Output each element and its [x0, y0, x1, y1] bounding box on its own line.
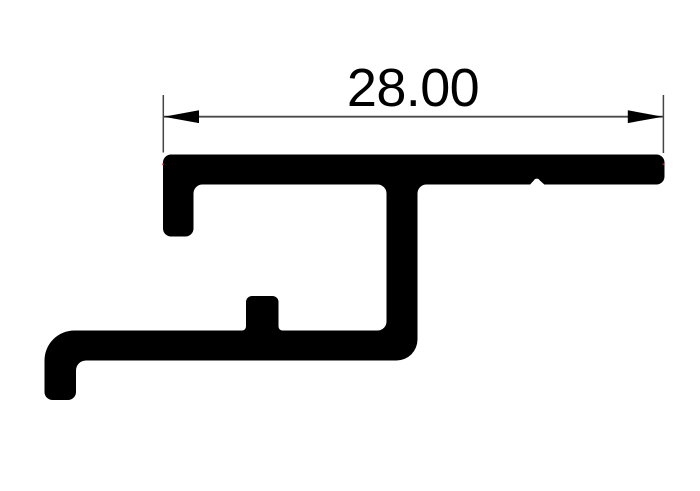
svg-text:28.00: 28.00	[347, 58, 479, 118]
